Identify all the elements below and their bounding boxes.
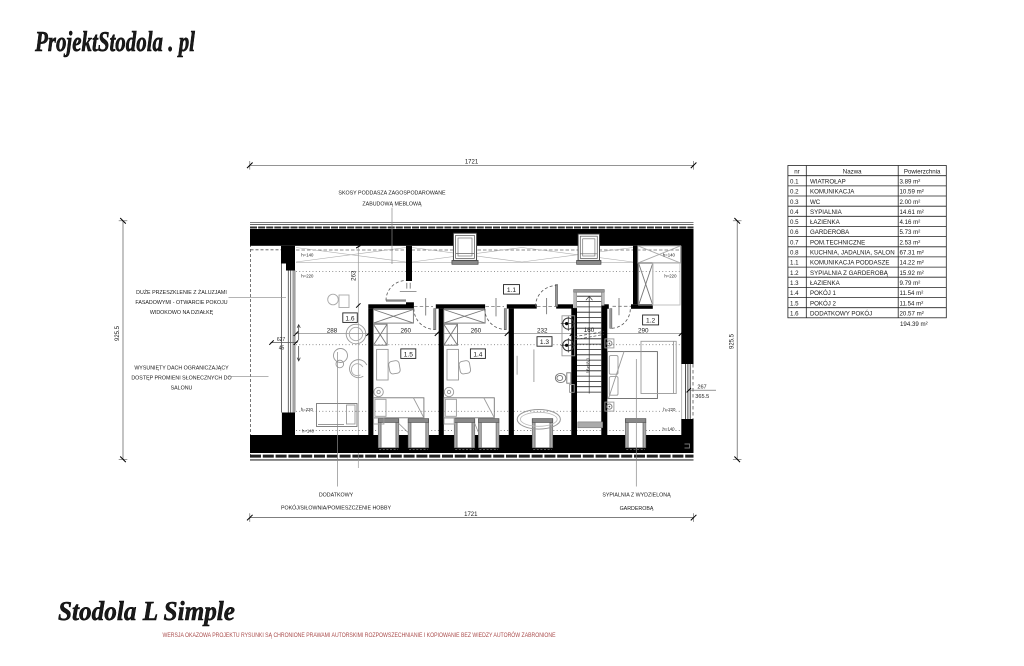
svg-text:45: 45 — [279, 345, 285, 351]
svg-text:11.54 m²: 11.54 m² — [900, 300, 924, 307]
svg-text:627: 627 — [277, 337, 286, 343]
svg-text:h=140: h=140 — [663, 253, 676, 258]
svg-text:0.8: 0.8 — [790, 250, 799, 257]
svg-text:263: 263 — [351, 270, 358, 281]
svg-text:POM.TECHNICZNE: POM.TECHNICZNE — [810, 239, 865, 246]
svg-text:GARDEROBA: GARDEROBA — [810, 229, 850, 236]
svg-text:SYPIALNIA Z WYDZIELONĄ: SYPIALNIA Z WYDZIELONĄ — [602, 492, 671, 498]
svg-text:267: 267 — [697, 384, 706, 390]
svg-text:DOSTĘP PROMIENI SŁONECZNYCH DO: DOSTĘP PROMIENI SŁONECZNYCH DO — [131, 375, 231, 381]
svg-text:0.6: 0.6 — [790, 229, 799, 236]
svg-text:DODATKOWY POKÓJ: DODATKOWY POKÓJ — [810, 310, 872, 317]
svg-text:0.5: 0.5 — [790, 219, 799, 226]
svg-text:1.1: 1.1 — [507, 287, 516, 294]
svg-text:10.59 m²: 10.59 m² — [900, 189, 924, 196]
svg-text:h=140: h=140 — [302, 428, 315, 433]
svg-text:GARDEROBĄ: GARDEROBĄ — [620, 506, 654, 512]
svg-text:288: 288 — [327, 328, 338, 335]
svg-text:9.79 m²: 9.79 m² — [900, 280, 921, 287]
svg-text:925.5: 925.5 — [115, 325, 121, 341]
svg-text:1.6: 1.6 — [345, 315, 354, 322]
svg-text:2.00 m²: 2.00 m² — [900, 199, 921, 206]
svg-text:0.1: 0.1 — [790, 179, 799, 186]
svg-text:1.4: 1.4 — [473, 351, 482, 358]
svg-text:POKÓJ/SIŁOWNIA/POMIESZCZENIE H: POKÓJ/SIŁOWNIA/POMIESZCZENIE HOBBY — [281, 504, 392, 511]
svg-text:3.89 m²: 3.89 m² — [900, 179, 921, 186]
svg-text:Powierzchnia: Powierzchnia — [904, 168, 941, 175]
svg-text:365.5: 365.5 — [695, 394, 709, 400]
svg-text:DODATKOWY: DODATKOWY — [319, 492, 354, 498]
svg-text:h=220: h=220 — [664, 273, 677, 278]
svg-text:SKOSY PODDASZA ZAGOSPODAROWANE: SKOSY PODDASZA ZAGOSPODAROWANE — [338, 190, 446, 196]
svg-text:WIATROŁAP: WIATROŁAP — [810, 179, 846, 186]
svg-text:ProjektStodola . pl: ProjektStodola . pl — [34, 26, 195, 58]
svg-text:WIDOKOWO NA DZIAŁKĘ: WIDOKOWO NA DZIAŁKĘ — [150, 310, 214, 316]
svg-text:20.57 m²: 20.57 m² — [900, 310, 924, 317]
svg-text:POKÓJ 1: POKÓJ 1 — [810, 290, 837, 297]
svg-text:ŁAZIENKA: ŁAZIENKA — [810, 219, 841, 226]
svg-text:14.22 m²: 14.22 m² — [900, 260, 924, 267]
svg-text:Stodola L Simple: Stodola L Simple — [58, 596, 235, 626]
svg-text:260: 260 — [471, 328, 482, 335]
svg-text:0.2: 0.2 — [790, 189, 799, 196]
svg-text:KUCHNIA, JADALNIA, SALON: KUCHNIA, JADALNIA, SALON — [810, 250, 895, 257]
svg-text:SYPIALNIA: SYPIALNIA — [810, 209, 843, 216]
svg-text:SALONU: SALONU — [171, 385, 193, 391]
svg-text:h=220: h=220 — [301, 407, 314, 412]
svg-text:0.4: 0.4 — [790, 209, 799, 216]
svg-text:16x18,1: 16x18,1 — [586, 357, 591, 373]
svg-text:1.6: 1.6 — [790, 310, 799, 317]
svg-text:h=140: h=140 — [301, 253, 314, 258]
svg-text:FASADOWYMI - OTWARCIE POKOJU: FASADOWYMI - OTWARCIE POKOJU — [135, 300, 227, 306]
svg-text:1721: 1721 — [465, 160, 479, 166]
svg-text:1.2: 1.2 — [790, 270, 799, 277]
svg-text:194.39 m²: 194.39 m² — [900, 321, 928, 328]
svg-text:1.2: 1.2 — [646, 318, 655, 325]
svg-text:ZABUDOWĄ MEBLOWĄ: ZABUDOWĄ MEBLOWĄ — [362, 201, 422, 207]
svg-text:DUŻE PRZESZKLENIE Z ŻALUZJAMI: DUŻE PRZESZKLENIE Z ŻALUZJAMI — [136, 289, 227, 296]
svg-text:KOMUNIKACJA: KOMUNIKACJA — [810, 189, 855, 196]
svg-text:1.3: 1.3 — [790, 280, 799, 287]
svg-text:0.7: 0.7 — [790, 239, 799, 246]
svg-text:POKÓJ 2: POKÓJ 2 — [810, 300, 837, 307]
svg-text:260: 260 — [400, 328, 411, 335]
svg-text:4.16 m²: 4.16 m² — [900, 219, 921, 226]
svg-text:WERSJA OKAZOWA PROJEKTU RYSUNK: WERSJA OKAZOWA PROJEKTU RYSUNKI SĄ CHRON… — [163, 630, 556, 639]
svg-text:232: 232 — [537, 328, 548, 335]
svg-text:1.1: 1.1 — [790, 260, 799, 267]
svg-text:1721: 1721 — [464, 512, 478, 518]
svg-text:Nazwa: Nazwa — [843, 168, 862, 175]
svg-text:WYSUNIĘTY DACH OGRANICZAJĄCY: WYSUNIĘTY DACH OGRANICZAJĄCY — [134, 365, 229, 371]
svg-text:925.5: 925.5 — [730, 333, 736, 349]
svg-text:nr: nr — [794, 168, 799, 175]
svg-text:1.5: 1.5 — [404, 351, 413, 358]
svg-text:160: 160 — [584, 327, 595, 334]
svg-text:h=220: h=220 — [301, 273, 314, 278]
svg-text:15.92 m²: 15.92 m² — [900, 270, 924, 277]
svg-text:67.31 m²: 67.31 m² — [900, 250, 924, 257]
svg-text:1.3: 1.3 — [540, 339, 549, 346]
svg-text:ŁAZIENKA: ŁAZIENKA — [810, 280, 841, 287]
svg-text:5.73 m²: 5.73 m² — [900, 229, 921, 236]
svg-text:SYPIALNIA Z GARDEROBĄ: SYPIALNIA Z GARDEROBĄ — [810, 270, 889, 277]
svg-text:1.4: 1.4 — [790, 290, 799, 297]
svg-text:KOMUNIKACJA PODDASZE: KOMUNIKACJA PODDASZE — [810, 260, 890, 267]
svg-text:2.53 m²: 2.53 m² — [900, 239, 921, 246]
svg-text:1.5: 1.5 — [790, 300, 799, 307]
svg-text:0.3: 0.3 — [790, 199, 799, 206]
svg-text:14.61 m²: 14.61 m² — [900, 209, 924, 216]
svg-text:h=140: h=140 — [663, 427, 676, 432]
svg-text:h=220: h=220 — [663, 407, 676, 412]
svg-text:290: 290 — [638, 328, 649, 335]
svg-text:WC: WC — [810, 199, 821, 206]
svg-text:11.54 m²: 11.54 m² — [900, 290, 924, 297]
